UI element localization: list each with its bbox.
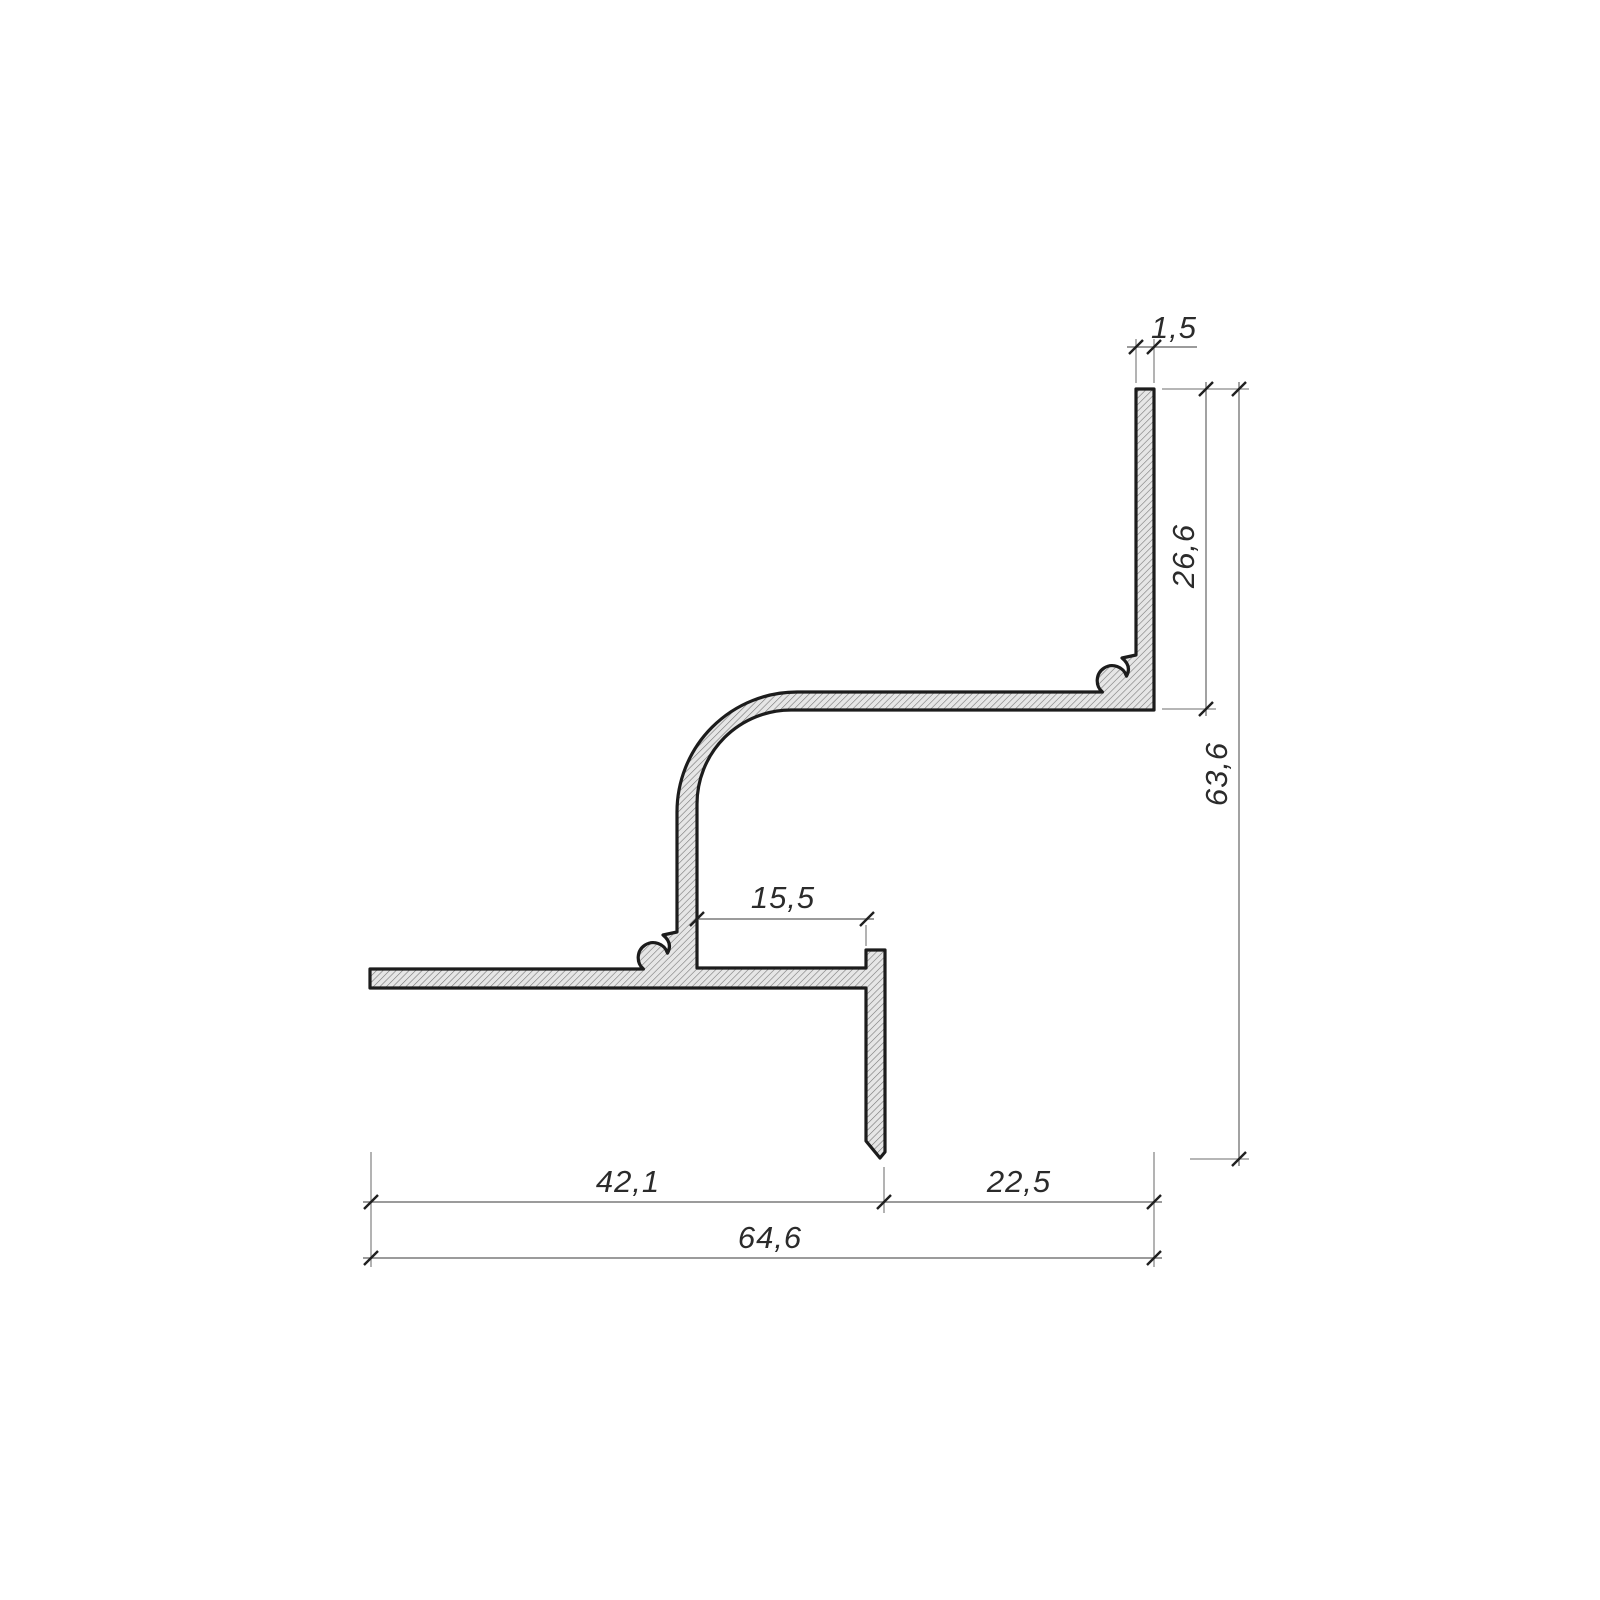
tick-marks	[364, 340, 1246, 1265]
extension-lines	[371, 339, 1249, 1267]
technical-drawing-canvas: 1,5 26,6 63,6 15,5 42,1 22,5 64,6	[0, 0, 1600, 1600]
dim-label-top-thickness: 1,5	[1151, 310, 1197, 345]
dim-label-bottom-left-width: 42,1	[596, 1164, 660, 1199]
dim-label-upper-right-height: 26,6	[1166, 524, 1201, 589]
profile-cross-section	[370, 389, 1154, 1158]
dim-label-bottom-total-width: 64,6	[738, 1220, 802, 1255]
dim-label-inner-gap: 15,5	[751, 880, 815, 915]
dimension-lines	[363, 347, 1239, 1258]
dim-label-total-height: 63,6	[1199, 742, 1234, 806]
dim-label-bottom-right-width: 22,5	[986, 1164, 1051, 1199]
drawing-page: 1,5 26,6 63,6 15,5 42,1 22,5 64,6	[0, 0, 1600, 1600]
